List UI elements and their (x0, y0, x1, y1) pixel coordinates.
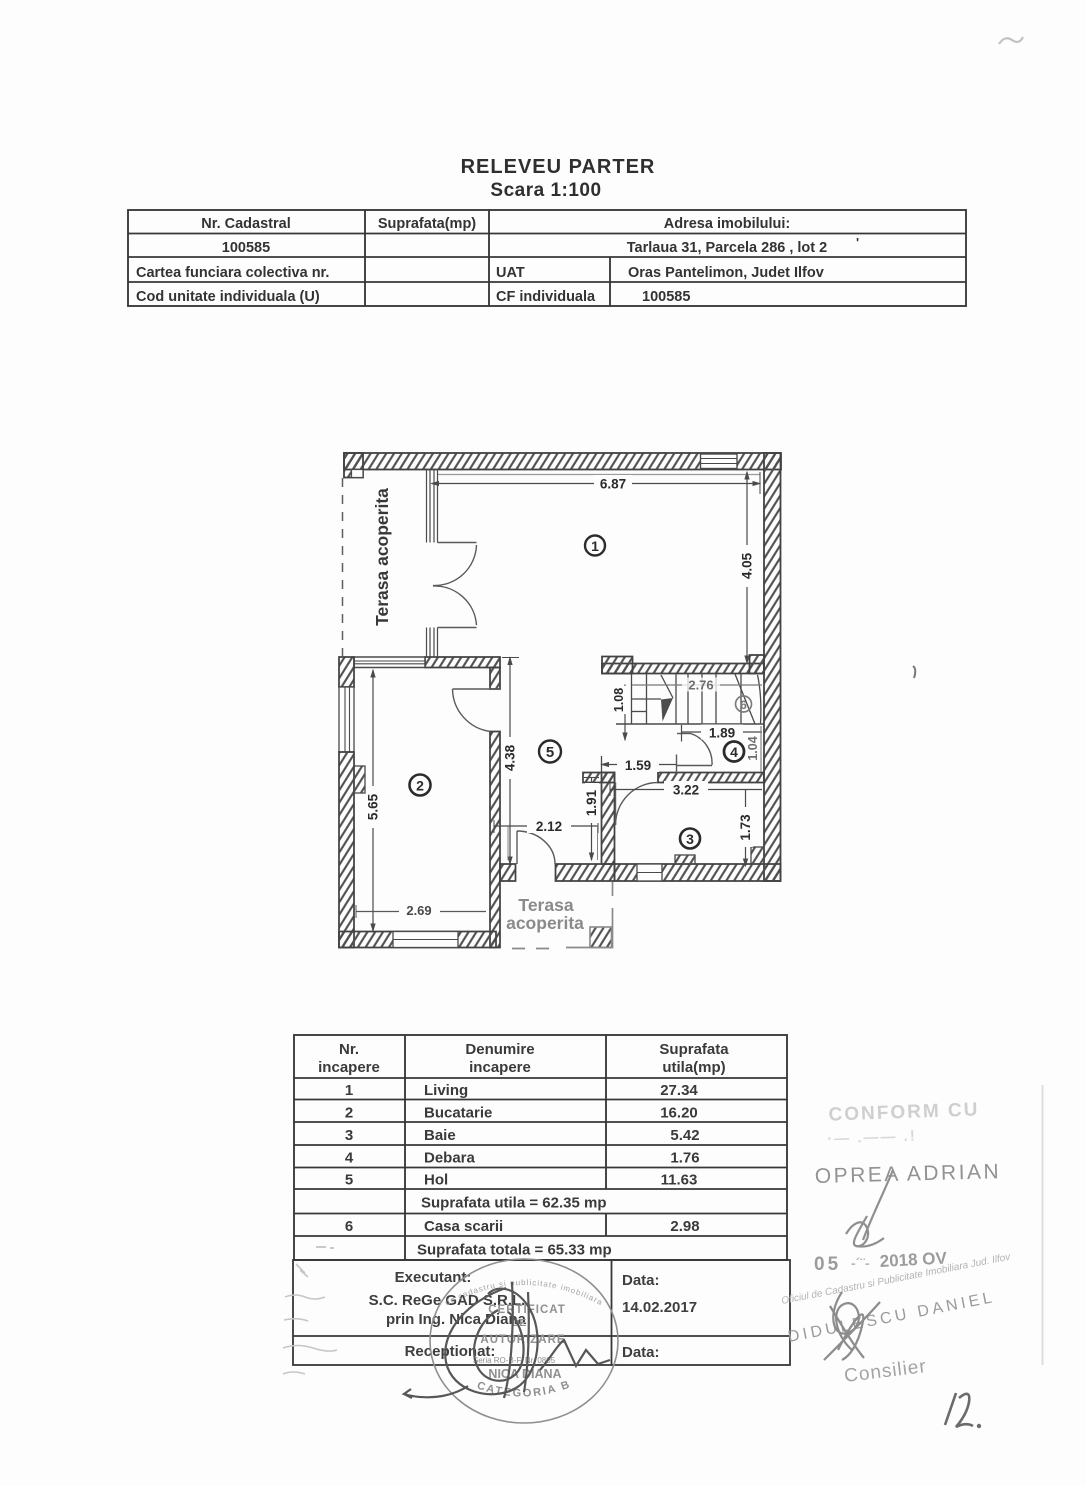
svg-text:Terasa acoperita: Terasa acoperita (372, 488, 392, 626)
svg-text:2.98: 2.98 (670, 1218, 699, 1235)
svg-text:Suprafata totala = 65.33 mp: Suprafata totala = 65.33 mp (417, 1242, 612, 1259)
svg-text:Consilier: Consilier (843, 1356, 928, 1387)
svg-text:Seria RO-B-F, Nr. 0805: Seria RO-B-F, Nr. 0805 (473, 1356, 556, 1365)
svg-text:Denumire: Denumire (465, 1041, 534, 1058)
svg-text:14.02.2017: 14.02.2017 (622, 1299, 697, 1316)
svg-text:11.63: 11.63 (661, 1172, 698, 1189)
svg-text:Baie: Baie (424, 1127, 456, 1144)
svg-text:4: 4 (345, 1150, 354, 1167)
svg-text:2.69: 2.69 (406, 903, 431, 918)
svg-text:6.87: 6.87 (600, 477, 626, 492)
svg-text:Living: Living (424, 1082, 468, 1099)
svg-text:05: 05 (814, 1254, 841, 1275)
svg-text:1.76: 1.76 (670, 1150, 699, 1167)
svg-text:utila(mp): utila(mp) (662, 1059, 725, 1076)
svg-text:OPREA ADRIAN: OPREA ADRIAN (815, 1160, 1002, 1188)
svg-text:Cod unitate individuala (U): Cod unitate individuala (U) (136, 289, 320, 305)
svg-text:Cartea funciara colectiva nr.: Cartea funciara colectiva nr. (136, 265, 329, 281)
svg-text:-´¨-: -´¨- (851, 1255, 870, 1271)
svg-text:·— .—— .!: ·— .—— .! (827, 1127, 917, 1147)
svg-text:incapere: incapere (318, 1059, 380, 1076)
svg-text:UAT: UAT (496, 265, 525, 281)
svg-text:1.89: 1.89 (709, 726, 735, 741)
svg-text:1.59: 1.59 (625, 758, 651, 773)
svg-text:1.73: 1.73 (738, 814, 753, 841)
svg-text:': ' (856, 235, 859, 250)
svg-text:RELEVEU PARTER: RELEVEU PARTER (461, 156, 656, 178)
svg-text:Scara 1:100: Scara 1:100 (490, 180, 601, 201)
svg-text:Tarlaua 31, Parcela 286 , lot: Tarlaua 31, Parcela 286 , lot 2 (627, 240, 827, 256)
svg-text:Casa scarii: Casa scarii (424, 1218, 503, 1235)
svg-text:4: 4 (730, 744, 738, 760)
svg-text:1.04: 1.04 (746, 736, 760, 760)
svg-text:27.34: 27.34 (660, 1082, 698, 1099)
svg-text:6: 6 (740, 698, 747, 712)
svg-text:2.12: 2.12 (536, 819, 562, 834)
svg-text:1.08: 1.08 (612, 688, 626, 712)
svg-text:2.76: 2.76 (688, 678, 713, 693)
svg-text:Debara: Debara (424, 1150, 476, 1167)
svg-text:4.05: 4.05 (740, 552, 755, 579)
svg-text:2: 2 (416, 778, 424, 794)
svg-text:3: 3 (345, 1127, 353, 1144)
svg-text:6: 6 (345, 1218, 353, 1235)
svg-text:Nr.: Nr. (339, 1041, 359, 1058)
svg-text:4.38: 4.38 (503, 744, 518, 771)
svg-text:Suprafata utila = 62.35 mp: Suprafata utila = 62.35 mp (421, 1195, 607, 1212)
svg-text:CONFORM CU: CONFORM CU (828, 1099, 980, 1125)
svg-text:Suprafata(mp): Suprafata(mp) (378, 216, 476, 232)
svg-text:Terasa: Terasa (518, 895, 573, 915)
svg-text:Oras Pantelimon, Judet Ilfov: Oras Pantelimon, Judet Ilfov (628, 265, 824, 281)
svg-text:100585: 100585 (642, 289, 690, 305)
svg-text:5.42: 5.42 (670, 1127, 699, 1144)
svg-text:Bucatarie: Bucatarie (424, 1105, 492, 1122)
svg-text:2: 2 (345, 1105, 353, 1122)
svg-text:Data:: Data: (622, 1272, 660, 1289)
svg-text:1: 1 (345, 1082, 353, 1099)
svg-text:5.65: 5.65 (366, 793, 381, 820)
svg-text:1: 1 (591, 538, 599, 554)
svg-text:Hol: Hol (424, 1172, 448, 1189)
svg-text:1.91: 1.91 (584, 789, 599, 816)
svg-text:Executant:: Executant: (395, 1269, 472, 1286)
svg-text:CF individuala: CF individuala (496, 289, 596, 305)
svg-text:100585: 100585 (222, 240, 270, 256)
svg-text:Adresa imobilului:: Adresa imobilului: (664, 216, 791, 232)
svg-text:5: 5 (345, 1172, 353, 1189)
svg-text:incapere: incapere (469, 1059, 531, 1076)
svg-text:3.22: 3.22 (673, 783, 699, 798)
svg-text:Data:: Data: (622, 1344, 660, 1361)
svg-text:5: 5 (546, 744, 554, 761)
svg-text:3: 3 (686, 831, 694, 847)
svg-text:Suprafata: Suprafata (659, 1041, 729, 1058)
svg-text:Nr. Cadastral: Nr. Cadastral (201, 216, 290, 232)
svg-text:16.20: 16.20 (660, 1105, 698, 1122)
svg-text:acoperita: acoperita (506, 913, 584, 933)
